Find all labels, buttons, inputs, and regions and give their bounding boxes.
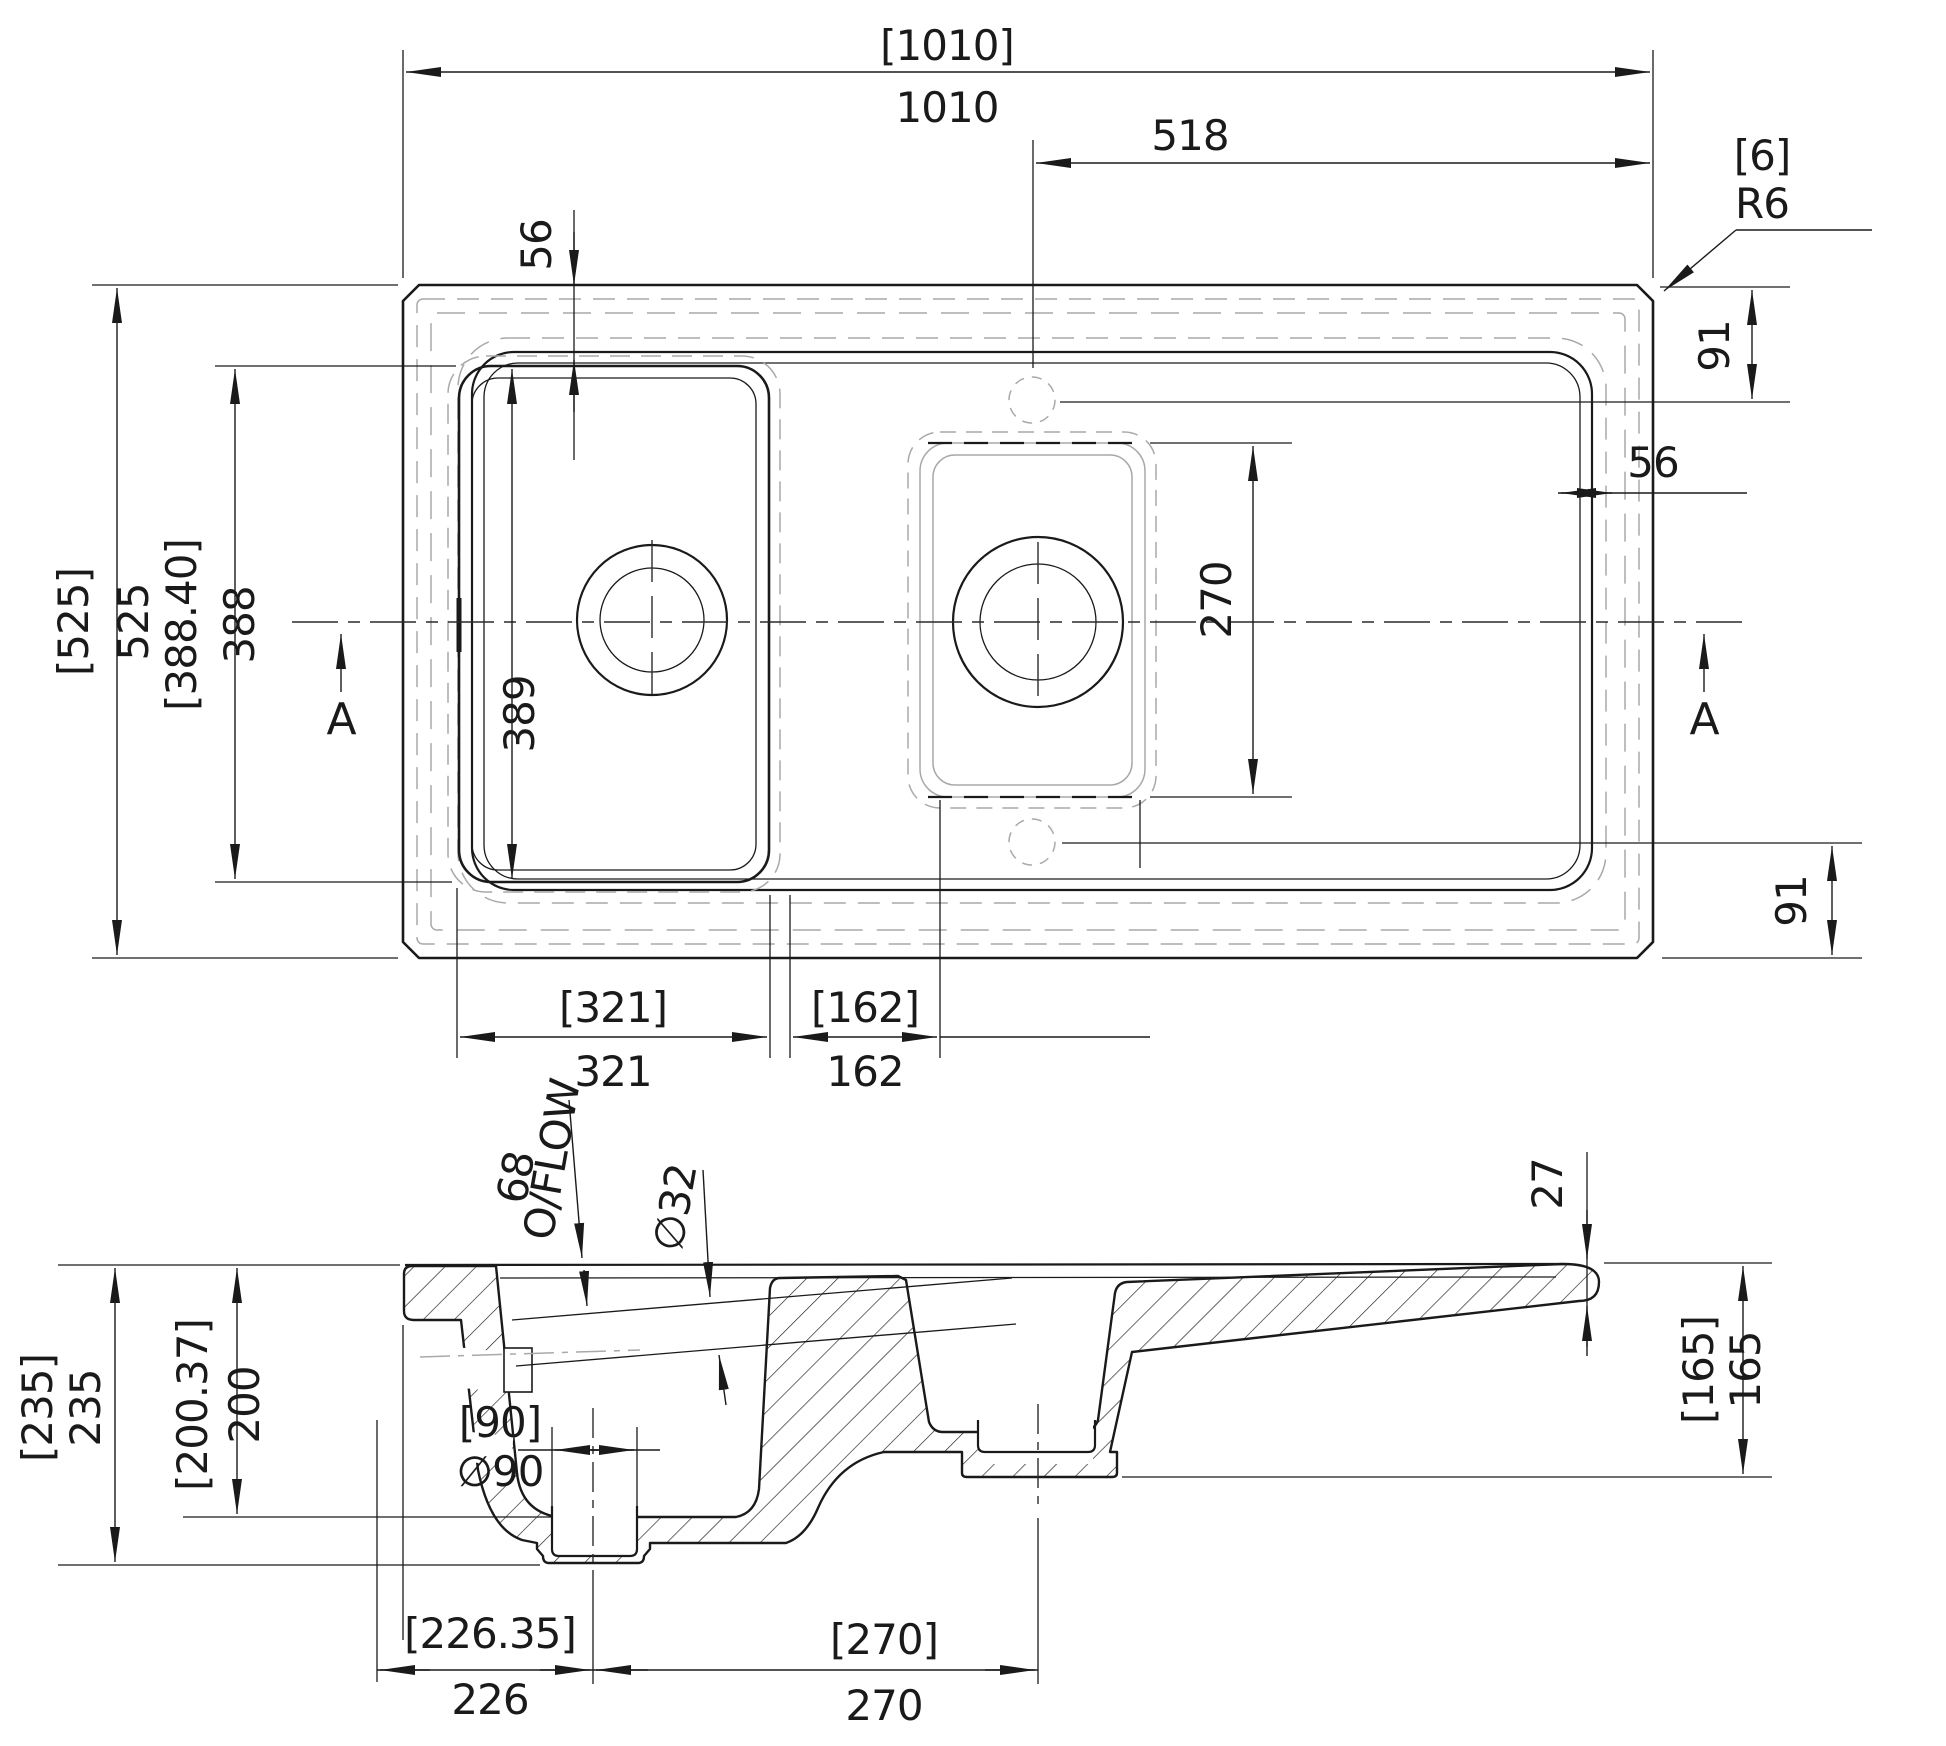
dim-waste-offset: 226	[451, 1675, 528, 1724]
dim-waste-hole-diameter: ∅90	[456, 1447, 543, 1496]
main-waste-hole	[553, 1506, 637, 1556]
drawing-canvas: [1010] 1010 518 [6] R6 [525] 525 [388.40…	[0, 0, 1946, 1746]
dim-half-bowl-width-bracket: [162]	[811, 983, 919, 1032]
dim-overall-depth: 525	[109, 583, 158, 660]
dim-main-bowl-width-bracket: [321]	[559, 983, 667, 1032]
section-marker-left: A	[326, 694, 356, 745]
half-bowl-hidden-outer	[908, 432, 1156, 808]
plan-recess-hidden	[458, 338, 1606, 903]
dim-half-bowl-depth-bracket: [165]	[1674, 1316, 1723, 1424]
dim-bowl-inner-depth: 389	[495, 675, 544, 752]
tap-hole-top	[1009, 377, 1055, 423]
overflow-fitting	[504, 1348, 532, 1392]
dim-bowl-depth-bracket: [200.37]	[168, 1319, 217, 1491]
dim-bowl-centres: 270	[845, 1681, 922, 1730]
main-bowl-inner	[472, 378, 756, 870]
dim-overall-height: 235	[61, 1369, 110, 1446]
dim-bowl-centres-bracket: [270]	[830, 1615, 938, 1664]
dim-drainer-margin-top: 91	[1690, 320, 1739, 371]
dim-overall-depth-bracket: [525]	[49, 568, 98, 676]
dim-half-bowl-depth: 165	[1721, 1331, 1770, 1408]
dim-cutout-depth: 388	[215, 586, 264, 663]
plan-view	[292, 285, 1744, 958]
sink-technical-drawing: [1010] 1010 518 [6] R6 [525] 525 [388.40…	[0, 0, 1946, 1746]
half-bowl-inner	[933, 455, 1132, 785]
half-waste-hole	[979, 1422, 1093, 1464]
dim-half-bowl-length: 270	[1192, 561, 1241, 638]
dim-drainer-margin-bottom: 91	[1767, 875, 1816, 926]
main-bowl-outer	[459, 366, 769, 882]
dim-overall-height-bracket: [235]	[13, 1354, 62, 1462]
section-view	[403, 1264, 1599, 1684]
dim-rim-inset-right: 56	[1627, 438, 1678, 487]
tap-hole-bottom	[1009, 819, 1055, 865]
dim-drainer-thickness: 27	[1523, 1158, 1572, 1209]
dim-bowl-depth: 200	[220, 1366, 269, 1443]
worktop-line	[405, 1264, 1563, 1265]
plan-dimensions: [1010] 1010 518 [6] R6 [525] 525 [388.40…	[49, 21, 1872, 1096]
dim-rim-inset-top: 56	[512, 219, 561, 270]
dim-half-bowl-width: 162	[826, 1047, 903, 1096]
plan-recess-inner	[484, 363, 1580, 879]
dim-tap-to-edge: 518	[1151, 111, 1228, 160]
dim-cutout-depth-bracket: [388.40]	[157, 539, 206, 711]
dim-overall-width-bracket: [1010]	[880, 21, 1014, 70]
main-bowl-hidden	[448, 356, 780, 892]
dim-corner-radius: R6	[1735, 179, 1789, 228]
dim-corner-chamfer-bracket: [6]	[1734, 131, 1791, 180]
dim-waste-hole-bracket: [90]	[459, 1398, 541, 1447]
dim-overall-width: 1010	[896, 83, 999, 132]
dim-waste-offset-bracket: [226.35]	[404, 1609, 576, 1658]
section-marker-right: A	[1689, 694, 1719, 745]
dim-overflow-diameter: ∅32	[643, 1160, 706, 1254]
